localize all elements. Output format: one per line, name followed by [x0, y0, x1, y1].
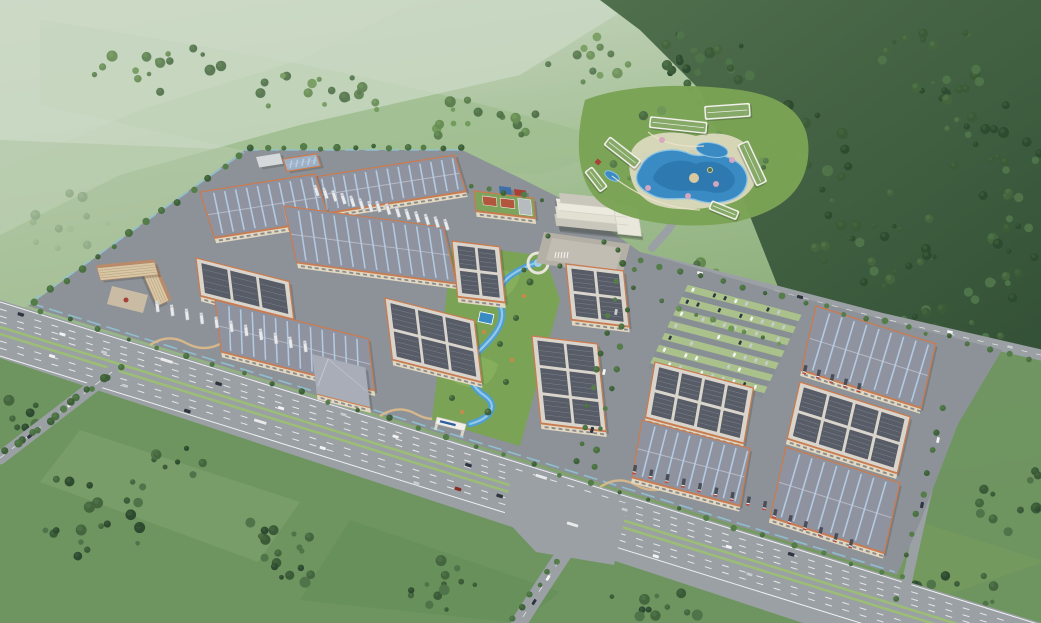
courtyard-feature	[124, 298, 129, 303]
building-factory-grid-east	[566, 264, 632, 333]
hillside-resort-complex	[579, 86, 809, 226]
layer-resort	[579, 86, 809, 226]
scene-canvas	[0, 0, 1041, 623]
industrial-park-aerial-rendering	[0, 0, 1041, 623]
building-factory-grid-south-east	[532, 336, 609, 437]
building-factory-grid-west	[452, 241, 508, 308]
building-resort-north-wing	[704, 103, 752, 122]
